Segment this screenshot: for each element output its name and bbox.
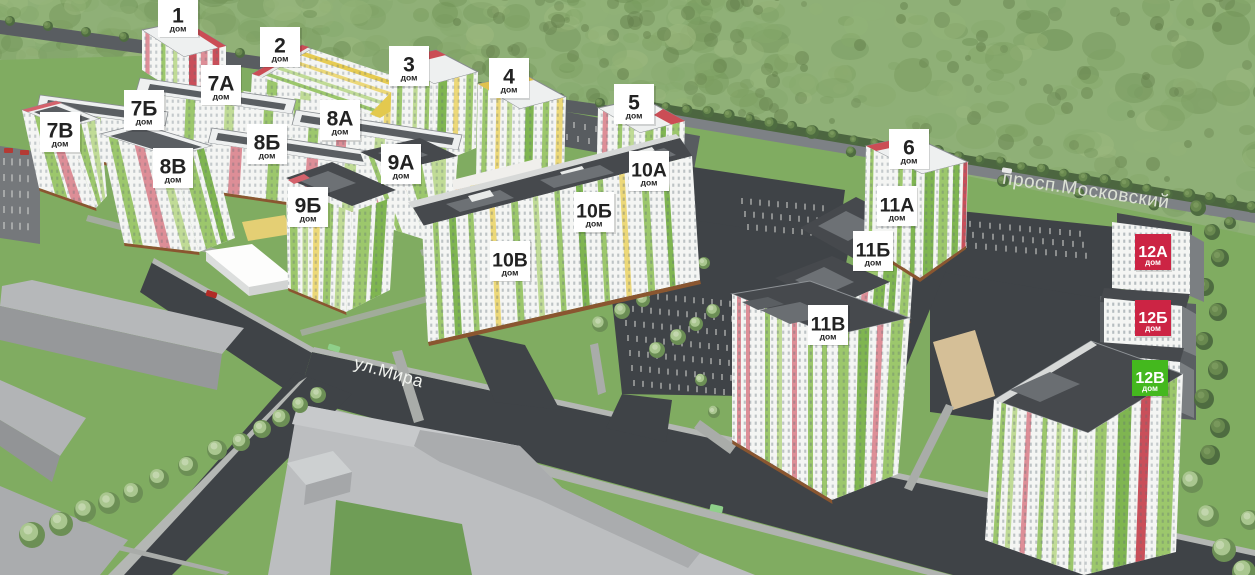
svg-text:дом: дом <box>865 258 882 268</box>
svg-text:дом: дом <box>502 268 519 278</box>
svg-text:дом: дом <box>165 175 182 185</box>
svg-text:дом: дом <box>393 171 410 181</box>
svg-text:дом: дом <box>213 92 230 102</box>
svg-text:дом: дом <box>259 151 276 161</box>
svg-text:дом: дом <box>820 332 837 342</box>
svg-text:дом: дом <box>136 117 153 127</box>
svg-text:дом: дом <box>1142 384 1158 393</box>
svg-text:дом: дом <box>586 219 603 229</box>
svg-text:дом: дом <box>1145 324 1161 333</box>
svg-text:дом: дом <box>501 85 518 95</box>
svg-text:дом: дом <box>300 214 317 224</box>
svg-text:дом: дом <box>170 24 187 34</box>
svg-text:дом: дом <box>641 178 658 188</box>
svg-text:дом: дом <box>626 111 643 121</box>
svg-text:дом: дом <box>52 139 69 149</box>
svg-text:дом: дом <box>272 54 289 64</box>
svg-text:дом: дом <box>901 156 918 166</box>
svg-text:дом: дом <box>1145 258 1161 267</box>
svg-text:дом: дом <box>401 73 418 83</box>
svg-text:дом: дом <box>889 213 906 223</box>
svg-text:дом: дом <box>332 127 349 137</box>
